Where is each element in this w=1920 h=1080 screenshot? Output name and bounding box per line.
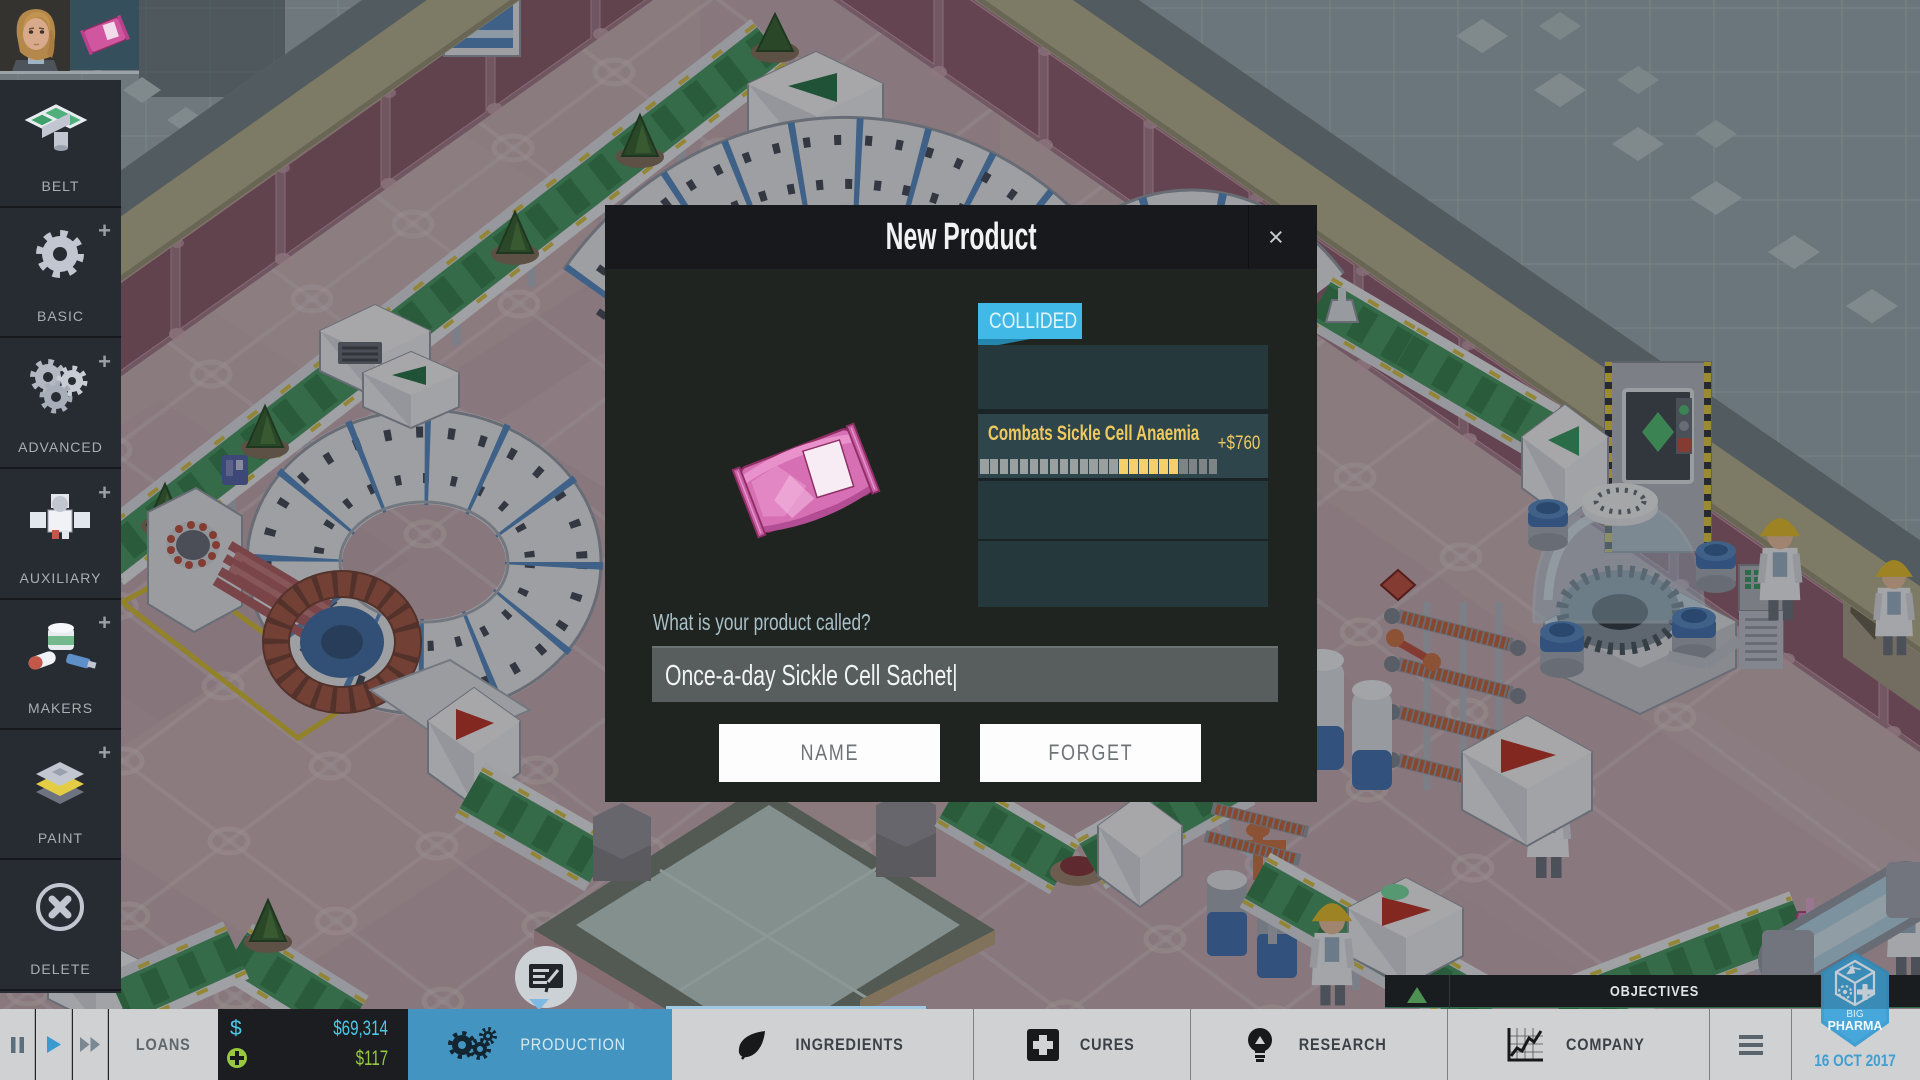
svg-text:PHARMA: PHARMA xyxy=(1828,1019,1883,1033)
